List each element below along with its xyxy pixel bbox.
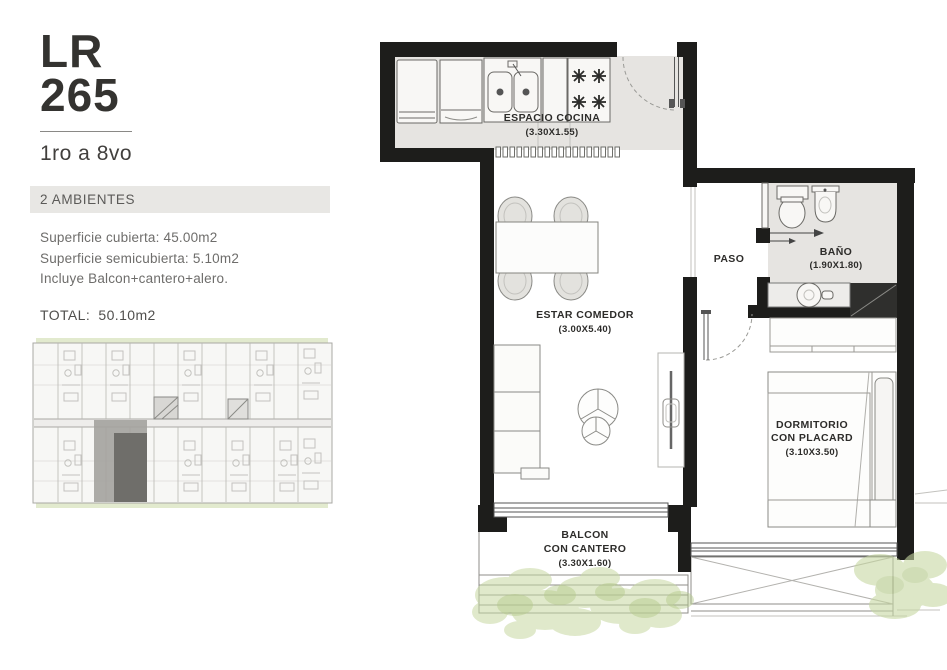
living-dims: (3.00X5.40): [559, 324, 612, 335]
paso-opening-threshold: [691, 187, 695, 277]
floorplan-sheet: { "panel": { "code_line1": "LR", "code_l…: [0, 0, 947, 670]
living-label: ESTAR COMEDOR: [536, 309, 634, 321]
service-shaft: [850, 283, 897, 318]
bedroom-door: [701, 310, 752, 360]
kitchen-label: ESPACIO COCINA: [504, 112, 600, 124]
living-balcony-window: [494, 503, 668, 517]
bedroom-dims: (3.10X3.50): [786, 447, 839, 458]
apartment-floor-plan: ESPACIO COCINA (3.30X1.55) ESTAR COMEDOR…: [0, 0, 947, 670]
paso-label: PASO: [714, 253, 745, 265]
fridge: [397, 60, 437, 123]
wardrobe-placard: [770, 318, 896, 352]
tv-unit: [658, 353, 684, 467]
corner-foliage: [854, 551, 947, 619]
sofa: [494, 345, 549, 479]
nightstand: [870, 500, 896, 527]
bath-dims: (1.90X1.80): [810, 260, 863, 271]
faucet: [508, 61, 517, 67]
dining-set: [496, 197, 598, 300]
balcony-label-2: CON CANTERO: [544, 543, 627, 555]
bath-label: BAÑO: [820, 245, 853, 258]
dining-table: [496, 222, 598, 273]
vanity-basin: [797, 283, 821, 307]
kitchen-dims: (3.30X1.55): [526, 127, 579, 138]
bedroom-label-1: DORMITORIO: [776, 419, 848, 431]
washer: [440, 60, 482, 123]
balcony-dims: (3.30X1.60): [559, 558, 612, 569]
bath-partition: [762, 183, 768, 228]
bedroom-window: [691, 543, 897, 556]
balcony-label-1: BALCON: [561, 529, 608, 541]
bedroom-label-2: CON PLACARD: [771, 432, 853, 444]
coffee-tables: [578, 389, 618, 445]
